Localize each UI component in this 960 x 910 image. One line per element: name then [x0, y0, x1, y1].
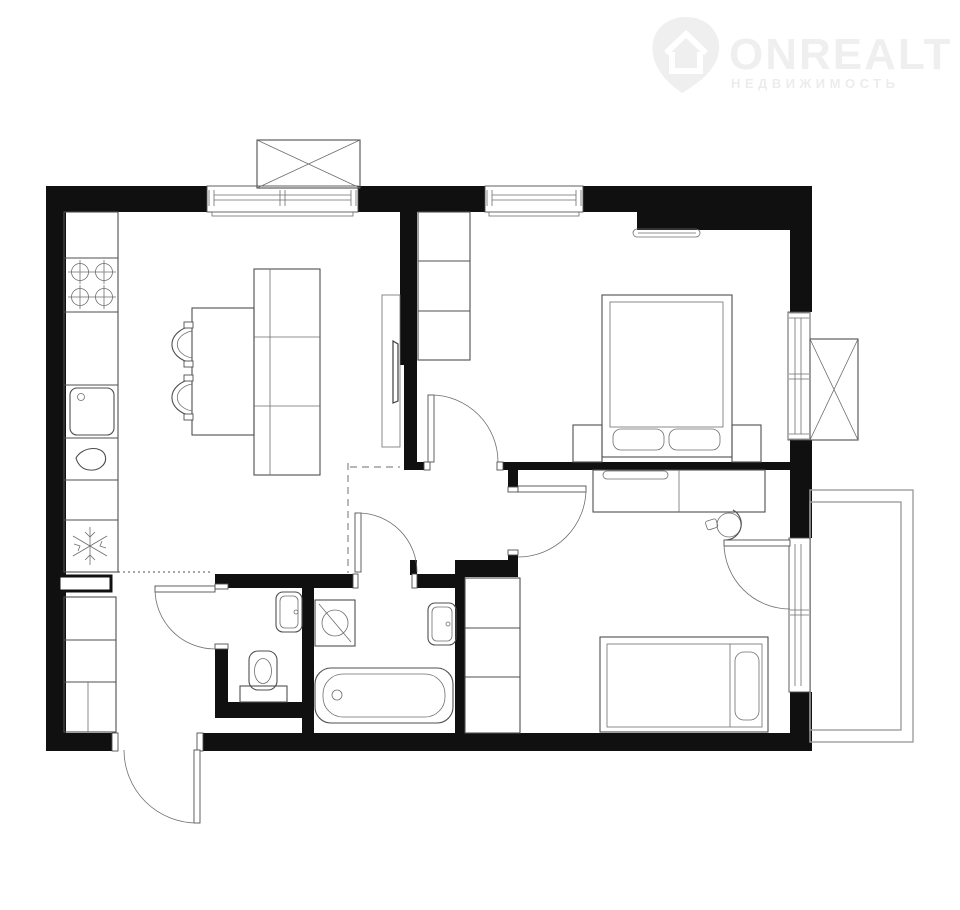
- bedroom-1-door-swing-arc: [431, 395, 498, 462]
- bathroom-door: [355, 513, 417, 572]
- entry-door: [124, 750, 200, 823]
- desk-dresser: [593, 470, 765, 512]
- sofa-cabinet: [254, 269, 320, 475]
- refrigerator-snowflake-icon: [73, 527, 107, 565]
- bathroom-door-leaf: [355, 513, 361, 572]
- dining-table: [192, 308, 254, 435]
- location-pin-house-icon: [652, 17, 719, 93]
- nightstand: [732, 425, 761, 462]
- hallway-closet: [64, 597, 116, 732]
- chair: [172, 322, 193, 367]
- balcony-door: [724, 538, 810, 692]
- wall-shelf: [633, 229, 700, 237]
- toilet-basin-icon: [276, 592, 302, 632]
- kitchen-window: [207, 186, 358, 216]
- bedroom-1-door-leaf: [428, 395, 434, 462]
- balcony-door-leaf: [724, 540, 790, 546]
- entry-door-leaf: [194, 750, 200, 823]
- pillow: [735, 652, 759, 720]
- laptop-icon: [603, 471, 668, 479]
- balcony-door-swing-arc: [724, 543, 790, 609]
- bedroom-2-door-leaf: [518, 486, 586, 492]
- bedroom-2-door-swing-arc: [518, 489, 586, 557]
- toilet-door: [155, 586, 215, 649]
- washing-machine-icon: [315, 600, 355, 646]
- desk-chair: [705, 510, 741, 540]
- floor-plan-page: ONREALT НЕДВИЖИМОСТЬ: [0, 0, 960, 910]
- nightstand: [573, 425, 602, 462]
- bathroom-basin-icon: [428, 603, 456, 645]
- vent-box: [257, 140, 360, 188]
- floor-plan-drawing: ONREALT НЕДВИЖИМОСТЬ: [0, 0, 960, 910]
- bedroom-1-door: [428, 395, 498, 462]
- single-bed: [600, 637, 768, 732]
- toilet-door-swing-arc: [155, 589, 215, 649]
- tv-console: [382, 295, 400, 447]
- interior-walls: [215, 212, 790, 751]
- chair: [172, 375, 193, 420]
- ac-box: [810, 339, 858, 440]
- toilet-icon: [240, 651, 287, 702]
- brand-name: ONREALT: [729, 30, 952, 79]
- pillow: [613, 429, 664, 450]
- faucet-icon: [76, 449, 106, 471]
- bedroom-1-wardrobe: [418, 212, 470, 360]
- pillow: [669, 429, 720, 450]
- kitchen-sink-icon: [70, 388, 114, 435]
- hallway-niche-cabinet: [59, 576, 111, 591]
- balcony: [810, 490, 913, 742]
- toilet-door-leaf: [155, 586, 215, 592]
- double-bed: [602, 295, 732, 457]
- bathroom-door-swing-arc: [358, 513, 417, 572]
- brand-logo: ONREALT НЕДВИЖИМОСТЬ: [652, 17, 952, 93]
- tv-icon: [393, 341, 398, 403]
- bedroom-2-wardrobe: [465, 578, 520, 733]
- bedroom-1-window: [485, 186, 583, 216]
- bathtub-icon: [315, 668, 453, 723]
- entry-door-swing-arc: [124, 750, 197, 823]
- stove-icon: [68, 260, 116, 309]
- bedroom-1-side-window: [788, 312, 810, 440]
- brand-subtitle: НЕДВИЖИМОСТЬ: [731, 76, 899, 91]
- bedroom-2-door: [518, 486, 586, 557]
